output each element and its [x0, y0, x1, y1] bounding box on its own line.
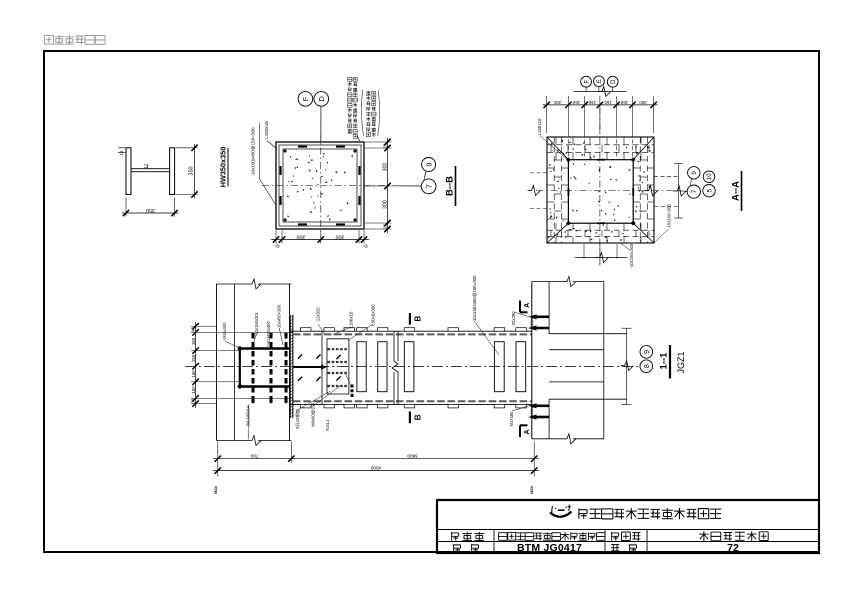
svg-text:19: 19 [119, 150, 124, 155]
svg-text:KGL1: KGL1 [325, 419, 330, 431]
svg-text:8: 8 [644, 364, 651, 368]
svg-text:-10x150=300: -10x150=300 [629, 243, 634, 268]
svg-text:2xM16x400: 2xM16x400 [266, 321, 271, 343]
svg-text:72: 72 [727, 542, 739, 554]
svg-text:B: B [414, 315, 423, 321]
svg-text:M16x400: M16x400 [222, 322, 227, 340]
svg-text:150: 150 [572, 100, 580, 105]
svg-text:150: 150 [191, 386, 196, 394]
svg-text:150: 150 [620, 100, 628, 105]
svg-text:7: 7 [424, 184, 433, 188]
svg-text:5: 5 [706, 189, 713, 193]
svg-text:150: 150 [588, 100, 596, 105]
svg-text:L150x16: L150x16 [264, 121, 269, 139]
svg-text:-10x100x450@150=300: -10x100x450@150=300 [250, 127, 255, 177]
svg-text:-10x150=300: -10x150=300 [667, 204, 672, 229]
svg-text:200: 200 [553, 100, 561, 105]
svg-text:M17x80: M17x80 [509, 411, 514, 427]
svg-text:B: B [414, 414, 423, 420]
svg-text:-20x280: -20x280 [511, 311, 516, 327]
svg-text:-10x150x30L: -10x150x30L [254, 311, 259, 336]
svg-text:L100x16: L100x16 [349, 311, 354, 328]
svg-text:40: 40 [191, 327, 196, 332]
svg-text:1--1: 1--1 [658, 352, 669, 370]
svg-text:150: 150 [191, 354, 196, 362]
svg-text:D: D [611, 79, 617, 84]
svg-text:200: 200 [639, 100, 647, 105]
svg-text:B--B: B--B [444, 176, 455, 196]
svg-text:L60x6x300: L60x6x300 [371, 304, 376, 326]
svg-text:E: E [597, 79, 603, 83]
svg-text:L150x16: L150x16 [537, 118, 542, 135]
svg-text:700: 700 [250, 453, 258, 459]
svg-text:HW350x350: HW350x350 [218, 147, 227, 188]
svg-text:150: 150 [604, 100, 612, 105]
svg-text:JGZ1: JGZ1 [676, 351, 686, 373]
svg-text:F: F [584, 80, 590, 84]
svg-text:9: 9 [424, 162, 433, 166]
svg-text:5孔16钢垫: 5孔16钢垫 [294, 408, 301, 428]
svg-text:M24: M24 [530, 485, 534, 493]
svg-text:350: 350 [189, 166, 195, 175]
svg-text:150: 150 [191, 337, 196, 345]
svg-text:350: 350 [146, 207, 155, 213]
svg-text:300: 300 [336, 233, 345, 239]
svg-text:25: 25 [383, 224, 388, 229]
svg-text:150: 150 [191, 370, 196, 378]
svg-text:300: 300 [383, 163, 389, 172]
svg-text:35: 35 [191, 398, 196, 403]
svg-text:300: 300 [297, 233, 306, 239]
svg-text:-16x450=300: -16x450=300 [277, 304, 282, 329]
svg-text:12: 12 [144, 163, 149, 169]
svg-text:25: 25 [383, 143, 388, 148]
svg-text:BTM JG0417: BTM JG0417 [517, 542, 582, 554]
svg-text:7: 7 [691, 189, 698, 193]
svg-text:9: 9 [644, 350, 651, 354]
svg-text:A: A [524, 303, 531, 308]
svg-text:4500: 4500 [370, 465, 381, 471]
svg-text:10: 10 [707, 173, 713, 180]
svg-text:300: 300 [383, 200, 389, 209]
svg-text:M6x90@150: M6x90@150 [311, 402, 316, 426]
svg-text:3800: 3800 [407, 453, 418, 459]
svg-text:M24: M24 [214, 485, 218, 493]
svg-text:F: F [301, 96, 310, 101]
svg-text:-10x150x450@150=300: -10x150x450@150=300 [472, 275, 477, 323]
svg-text:A: A [524, 429, 531, 434]
svg-text:9: 9 [691, 171, 698, 175]
svg-text:A--A: A--A [730, 181, 741, 201]
svg-text:-12x320: -12x320 [316, 307, 321, 323]
svg-text:D: D [317, 96, 326, 102]
